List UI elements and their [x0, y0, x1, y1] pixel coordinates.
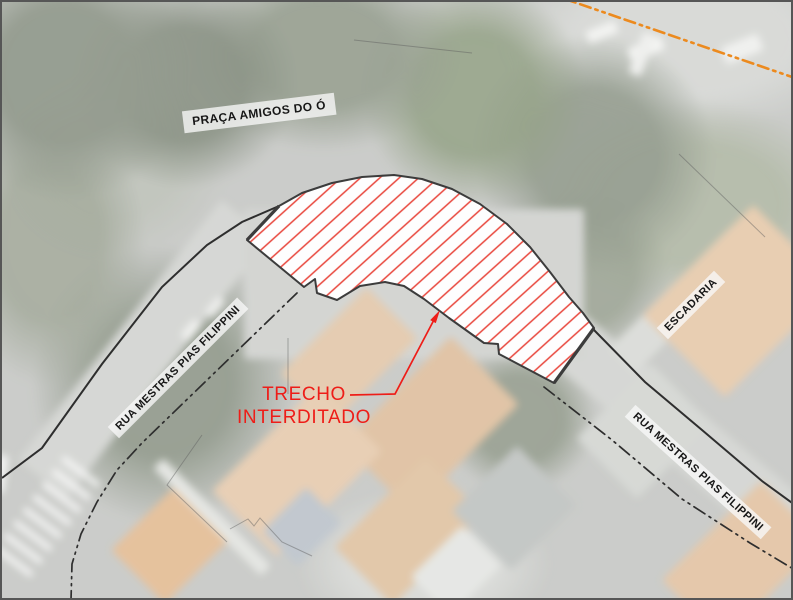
closed-section-annotation-line1: TRECHO [237, 383, 371, 406]
closed-section-annotation-line2: INTERDITADO [237, 406, 371, 429]
closed-section-annotation: TRECHO INTERDITADO [237, 383, 371, 429]
arrowhead [430, 310, 440, 323]
closure-hatch [247, 175, 594, 383]
center-line-right [544, 387, 793, 570]
road-closure-site-plan: PRAÇA AMIGOS DO Ó RUA MESTRAS PIAS FILIP… [0, 0, 793, 600]
plan-linework [2, 2, 793, 600]
center-line-left [71, 293, 297, 600]
street-edge-line-left [2, 206, 279, 478]
closed-section-polygon [247, 175, 594, 383]
phase-line-orange [565, 2, 793, 78]
